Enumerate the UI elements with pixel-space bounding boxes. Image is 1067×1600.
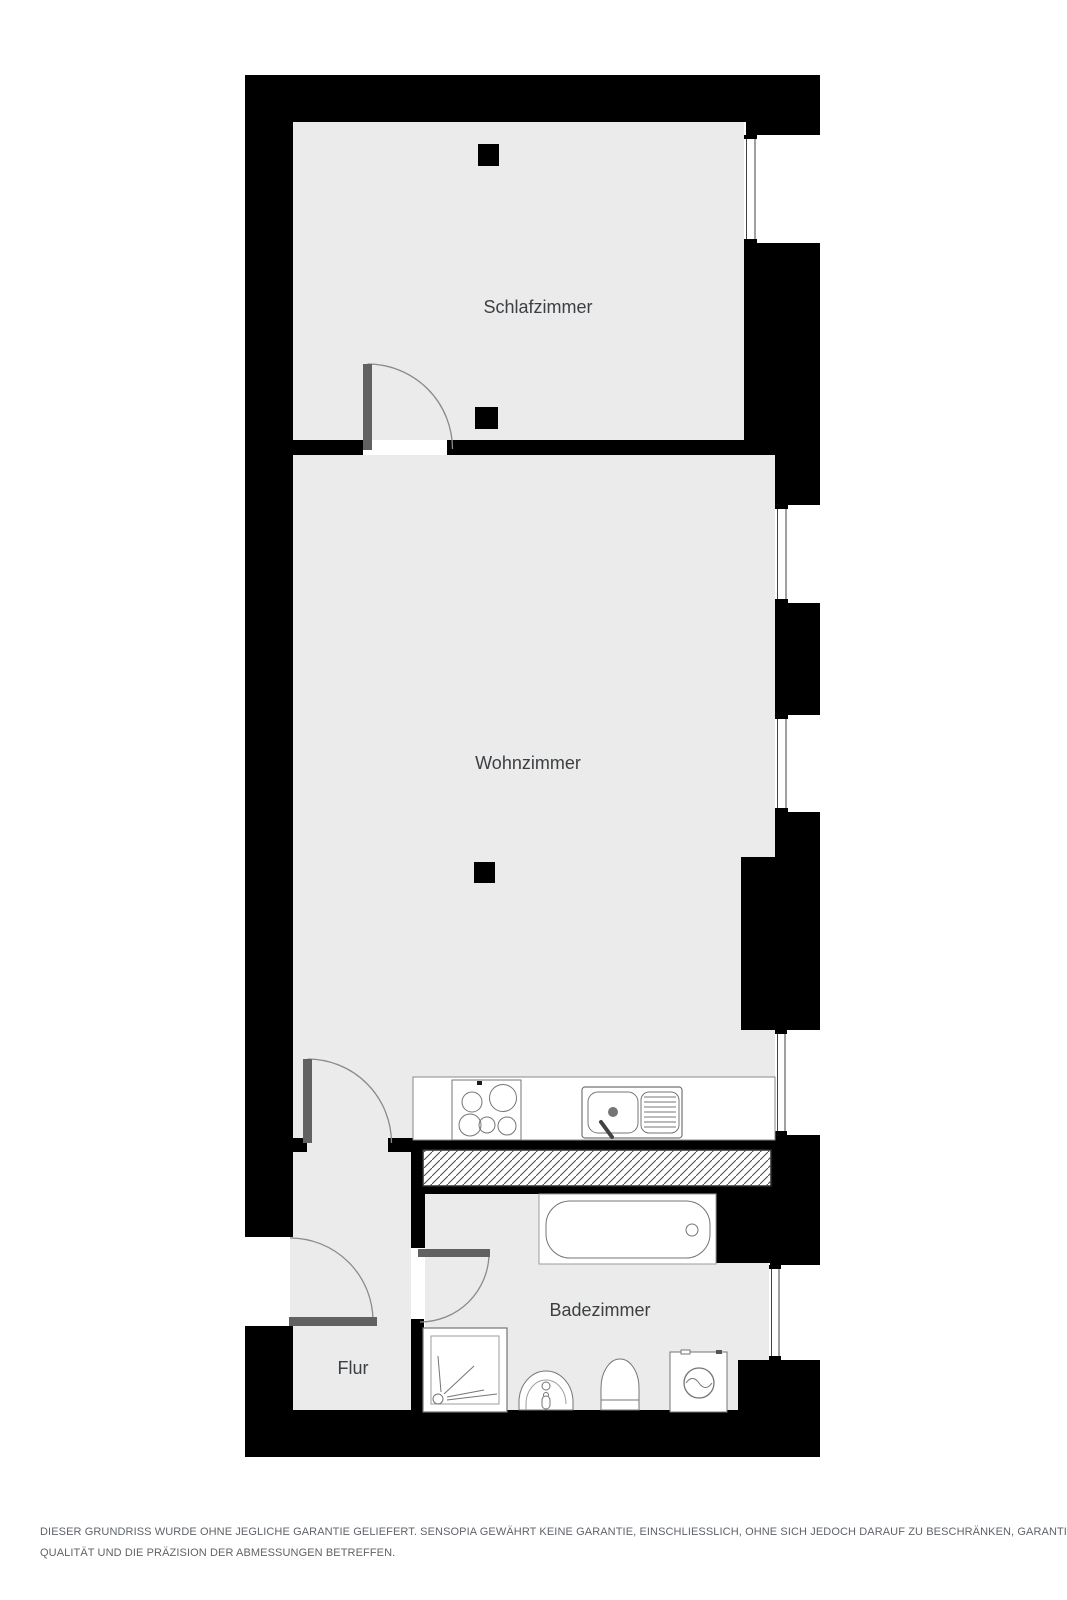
column-icon bbox=[478, 144, 499, 166]
bedroom-label: Schlafzimmer bbox=[483, 297, 592, 317]
shower-icon bbox=[423, 1328, 507, 1412]
bathtub-icon bbox=[539, 1194, 716, 1264]
window-icon bbox=[744, 135, 757, 243]
livingroom-label: Wohnzimmer bbox=[475, 753, 581, 773]
window-icon bbox=[775, 715, 788, 812]
kitchen-sink-icon bbox=[582, 1087, 682, 1138]
stove-icon bbox=[452, 1080, 521, 1140]
livingroom-floor bbox=[293, 455, 775, 1140]
disclaimer-text: DIESER GRUNDRISS WURDE OHNE JEGLICHE GAR… bbox=[40, 1522, 1030, 1564]
hallway-door-gap-floor bbox=[307, 1138, 388, 1152]
hallway-label: Flur bbox=[338, 1358, 369, 1378]
toilet-icon bbox=[601, 1359, 639, 1410]
hatched-shaft bbox=[423, 1150, 771, 1186]
disclaimer-line-1: DIESER GRUNDRISS WURDE OHNE JEGLICHE GAR… bbox=[40, 1522, 1030, 1543]
window-icon bbox=[775, 505, 788, 603]
floorplan-page: Schlafzimmer Wohnzimmer Badezimmer Flur … bbox=[0, 0, 1067, 1600]
floorplan-drawing: Schlafzimmer Wohnzimmer Badezimmer Flur bbox=[0, 0, 1067, 1600]
washing-machine-icon bbox=[670, 1350, 727, 1412]
column-icon bbox=[474, 862, 495, 883]
kitchen-counter bbox=[413, 1077, 775, 1140]
column-icon bbox=[475, 407, 498, 429]
bathroom-label: Badezimmer bbox=[549, 1300, 650, 1320]
window-icon bbox=[775, 1030, 787, 1135]
window-icon bbox=[769, 1265, 781, 1360]
disclaimer-line-2: QUALITÄT UND DIE PRÄZISION DER ABMESSUNG… bbox=[40, 1543, 1030, 1564]
bedroom-floor bbox=[293, 122, 744, 440]
